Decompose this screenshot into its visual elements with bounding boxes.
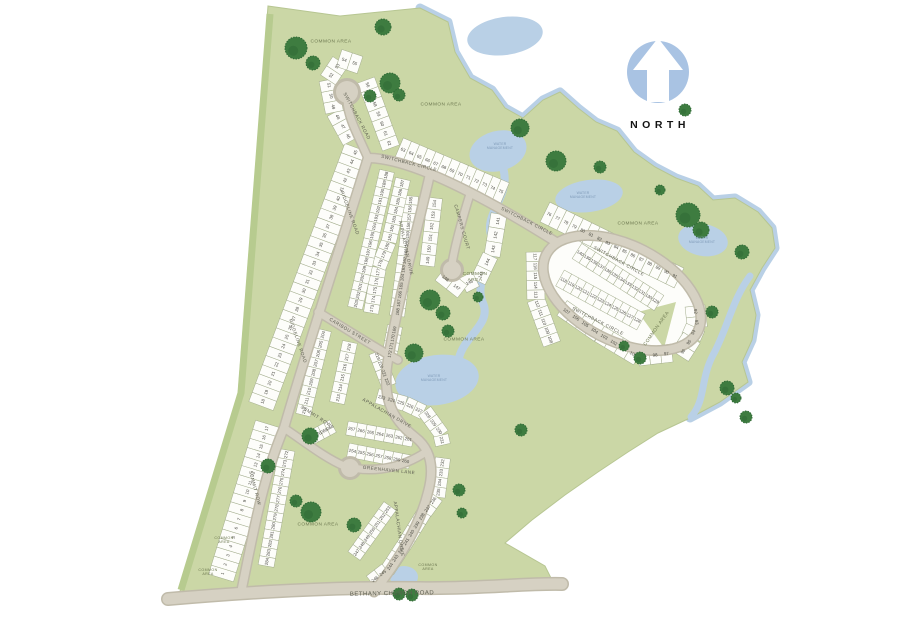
lot-number: 117 xyxy=(533,253,538,261)
site-plan: 1234567891011121314151617181920212223242… xyxy=(0,0,923,618)
lot-number: 149 xyxy=(425,256,431,264)
tree-icon xyxy=(680,213,691,224)
common-area-label: COMMON AREA xyxy=(444,337,485,343)
lot-number: 153 xyxy=(430,211,436,219)
tree-icon xyxy=(475,296,480,301)
lot-number: 164 xyxy=(399,273,405,281)
lot-number: 165 xyxy=(398,282,404,290)
lot-number: 113 xyxy=(533,291,538,299)
tree-icon xyxy=(636,357,641,362)
tree-icon xyxy=(549,159,558,168)
common-area-label: COMMON AREA xyxy=(421,102,462,108)
tree-icon xyxy=(263,465,269,471)
lot-number: 115 xyxy=(533,272,538,280)
tree-icon xyxy=(349,524,355,530)
lot-number: 154 xyxy=(431,199,437,207)
tree-icon xyxy=(621,345,626,350)
tree-icon xyxy=(444,330,449,335)
north-label: NORTH xyxy=(630,119,690,131)
north-arrow: NORTH xyxy=(627,38,690,131)
tree-icon xyxy=(722,387,728,393)
site-plan-map: 1234567891011121314151617181920212223242… xyxy=(0,0,923,618)
tree-icon xyxy=(708,311,713,316)
lot-number: 156 xyxy=(407,204,413,212)
tree-icon xyxy=(304,434,311,441)
tree-icon xyxy=(288,46,298,56)
lot-number: 158 xyxy=(406,222,412,230)
lot-number: 152 xyxy=(429,222,435,230)
lot-number: 150 xyxy=(426,245,432,253)
tree-icon xyxy=(459,512,464,517)
tree-icon xyxy=(308,62,314,68)
common-area-label: COMMON AREA xyxy=(311,39,352,45)
tree-icon xyxy=(408,351,416,359)
tree-icon xyxy=(737,251,743,257)
common-area-label: COMMON AREA xyxy=(618,221,659,227)
tree-icon xyxy=(596,166,601,171)
tree-icon xyxy=(292,500,297,505)
tree-icon xyxy=(366,95,371,100)
lot-number: 155 xyxy=(408,196,414,204)
tree-icon xyxy=(517,429,522,434)
tree-icon xyxy=(455,489,460,494)
pond xyxy=(465,12,546,60)
lot-number: 168 xyxy=(395,307,401,315)
tree-icon xyxy=(695,228,702,235)
cul-de-sac-pavement xyxy=(341,459,359,477)
tree-icon xyxy=(438,312,444,318)
tree-icon xyxy=(423,298,432,307)
lot-number: 166 xyxy=(397,290,403,298)
lot-number: 167 xyxy=(396,299,402,307)
tree-icon xyxy=(304,510,313,519)
street-label: BETHANY CHURCH ROAD xyxy=(350,590,435,597)
tree-icon xyxy=(742,416,747,421)
tree-icon xyxy=(395,94,400,99)
tree-icon xyxy=(514,126,522,134)
lot-number: 163 xyxy=(400,264,406,272)
lot-number: 114 xyxy=(533,282,538,290)
tree-icon xyxy=(383,81,392,90)
lot-number: 157 xyxy=(406,213,412,221)
tree-icon xyxy=(657,189,662,194)
common-area-label: COMMON AREA xyxy=(298,522,339,528)
tree-icon xyxy=(377,25,384,32)
tree-icon xyxy=(733,397,738,402)
lot-number: 151 xyxy=(427,233,433,241)
lot-number: 116 xyxy=(533,263,538,271)
tree-icon xyxy=(681,109,686,114)
